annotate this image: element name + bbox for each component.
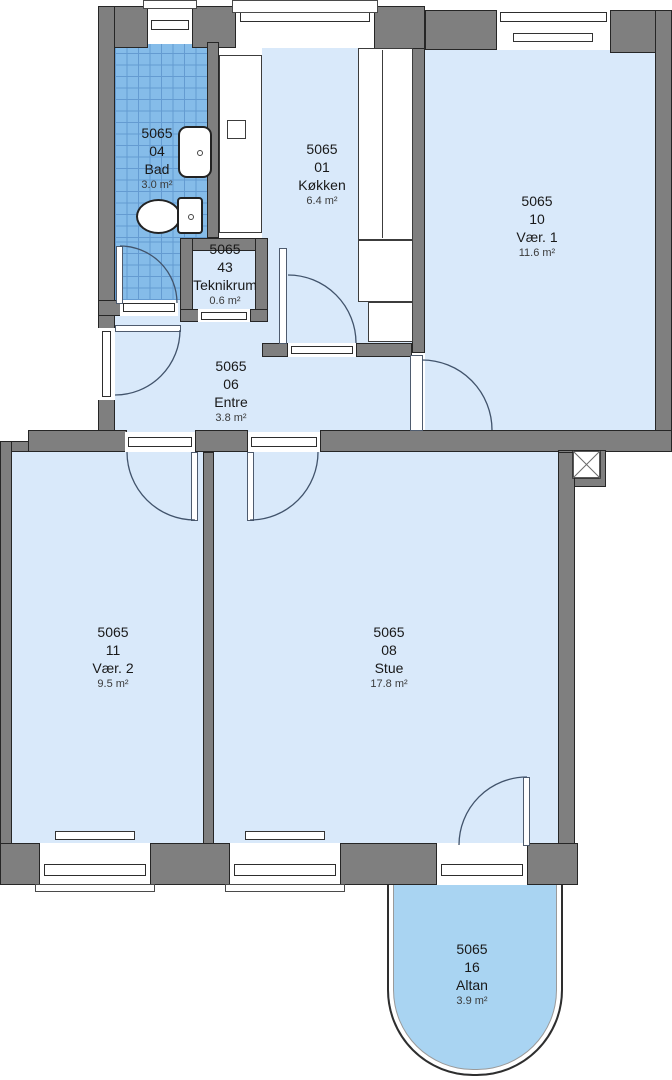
room-area: 9.5 m² [92,677,133,691]
stue-radiator [245,831,325,840]
entrance-door-frame [102,331,111,397]
room-label-bad: 5065 04 Bad 3.0 m² [141,124,172,192]
room-no: 10 [516,210,557,228]
altan-door-leaf [523,777,530,846]
room-label-stue: 5065 08 Stue 17.8 m² [370,623,407,691]
room-no: 08 [370,641,407,659]
wall [262,343,288,357]
toilet-tank-icon [177,197,203,234]
wall [527,843,578,885]
vaer2-door-threshold [128,437,192,447]
room-label-vaer1: 5065 10 Vær. 1 11.6 m² [516,192,557,260]
koekken-door-threshold [291,346,353,354]
sink-icon [178,126,212,178]
wall [98,6,115,306]
room-label-teknikrum: 5065 43 Teknikrum 0.6 m² [193,240,257,308]
bad-window-sill [143,0,197,9]
kitchen-counter-west [219,55,262,233]
room-name: Bad [141,160,172,178]
room-building-no: 5065 [516,192,557,210]
vaer2-door-leaf [191,452,198,521]
room-no: 01 [298,158,345,176]
vaer2-radiator [55,831,135,840]
vaer1-window-glass [500,12,607,22]
wall [340,843,437,885]
koekken-door-leaf [279,248,287,344]
wall [28,430,127,452]
room-no: 11 [92,641,133,659]
stue-door-leaf [247,452,254,521]
floor-plan: 5065 04 Bad 3.0 m² 5065 01 Køkken 6.4 m²… [0,0,672,1080]
room-label-altan: 5065 16 Altan 3.9 m² [456,940,488,1008]
wall [0,441,12,885]
room-area: 3.8 m² [214,411,247,425]
room-no: 06 [214,375,247,393]
kitchen-counter-divider [382,50,383,238]
wall [0,843,40,885]
room-no: 04 [141,142,172,160]
koekken-window-sill [232,0,378,13]
koekken-window-glass [240,12,370,22]
altan-door-threshold [441,864,523,876]
room-no: 16 [456,958,488,976]
kitchen-counter-east-upper [358,48,413,240]
wall [320,430,672,452]
stue-window-glass [234,864,336,876]
room-building-no: 5065 [456,940,488,958]
room-label-vaer2: 5065 11 Vær. 2 9.5 m² [92,623,133,691]
wall [203,452,214,845]
wall [356,343,412,357]
wall [374,6,425,52]
vaer1-door-leaf [410,355,423,431]
stue-door-threshold [251,437,317,447]
room-label-koekken: 5065 01 Køkken 6.4 m² [298,140,345,208]
wall [150,843,230,885]
wall [180,309,200,322]
stue-window-sill [225,884,345,892]
wall [558,452,575,845]
toilet-icon [136,199,181,234]
wall [425,10,497,50]
room-name: Stue [370,659,407,677]
room-name: Køkken [298,176,345,194]
wall [195,430,248,452]
room-building-no: 5065 [214,357,247,375]
room-area: 3.0 m² [141,178,172,192]
room-building-no: 5065 [141,124,172,142]
teknikrum-door-threshold [201,312,247,320]
room-name: Altan [456,976,488,994]
wall [250,309,268,322]
kitchen-appliance [227,120,246,139]
room-bad-tiled-floor-lower [115,238,180,300]
kitchen-counter-east-mid [358,240,413,302]
room-building-no: 5065 [193,240,257,258]
room-name: Entre [214,393,247,411]
room-building-no: 5065 [92,623,133,641]
vaer2-window-sill [35,884,155,892]
room-name: Teknikrum [193,276,257,294]
room-area: 3.9 m² [456,994,488,1008]
wall [412,48,425,353]
room-area: 6.4 m² [298,194,345,208]
kitchen-counter-east-low [368,302,413,342]
room-name: Vær. 1 [516,228,557,246]
vaer1-radiator [513,33,593,42]
room-name: Vær. 2 [92,659,133,677]
room-label-entre: 5065 06 Entre 3.8 m² [214,357,247,425]
wall [655,10,672,452]
entrance-door-leaf [115,325,181,332]
bad-window-glass [151,20,189,30]
bad-door-leaf [116,246,123,304]
room-area: 0.6 m² [193,294,257,308]
room-building-no: 5065 [298,140,345,158]
room-area: 17.8 m² [370,677,407,691]
room-no: 43 [193,258,257,276]
vaer2-window-glass [44,864,146,876]
room-building-no: 5065 [370,623,407,641]
wall [98,398,115,434]
room-area: 11.6 m² [516,246,557,260]
bad-door-threshold [123,303,175,312]
